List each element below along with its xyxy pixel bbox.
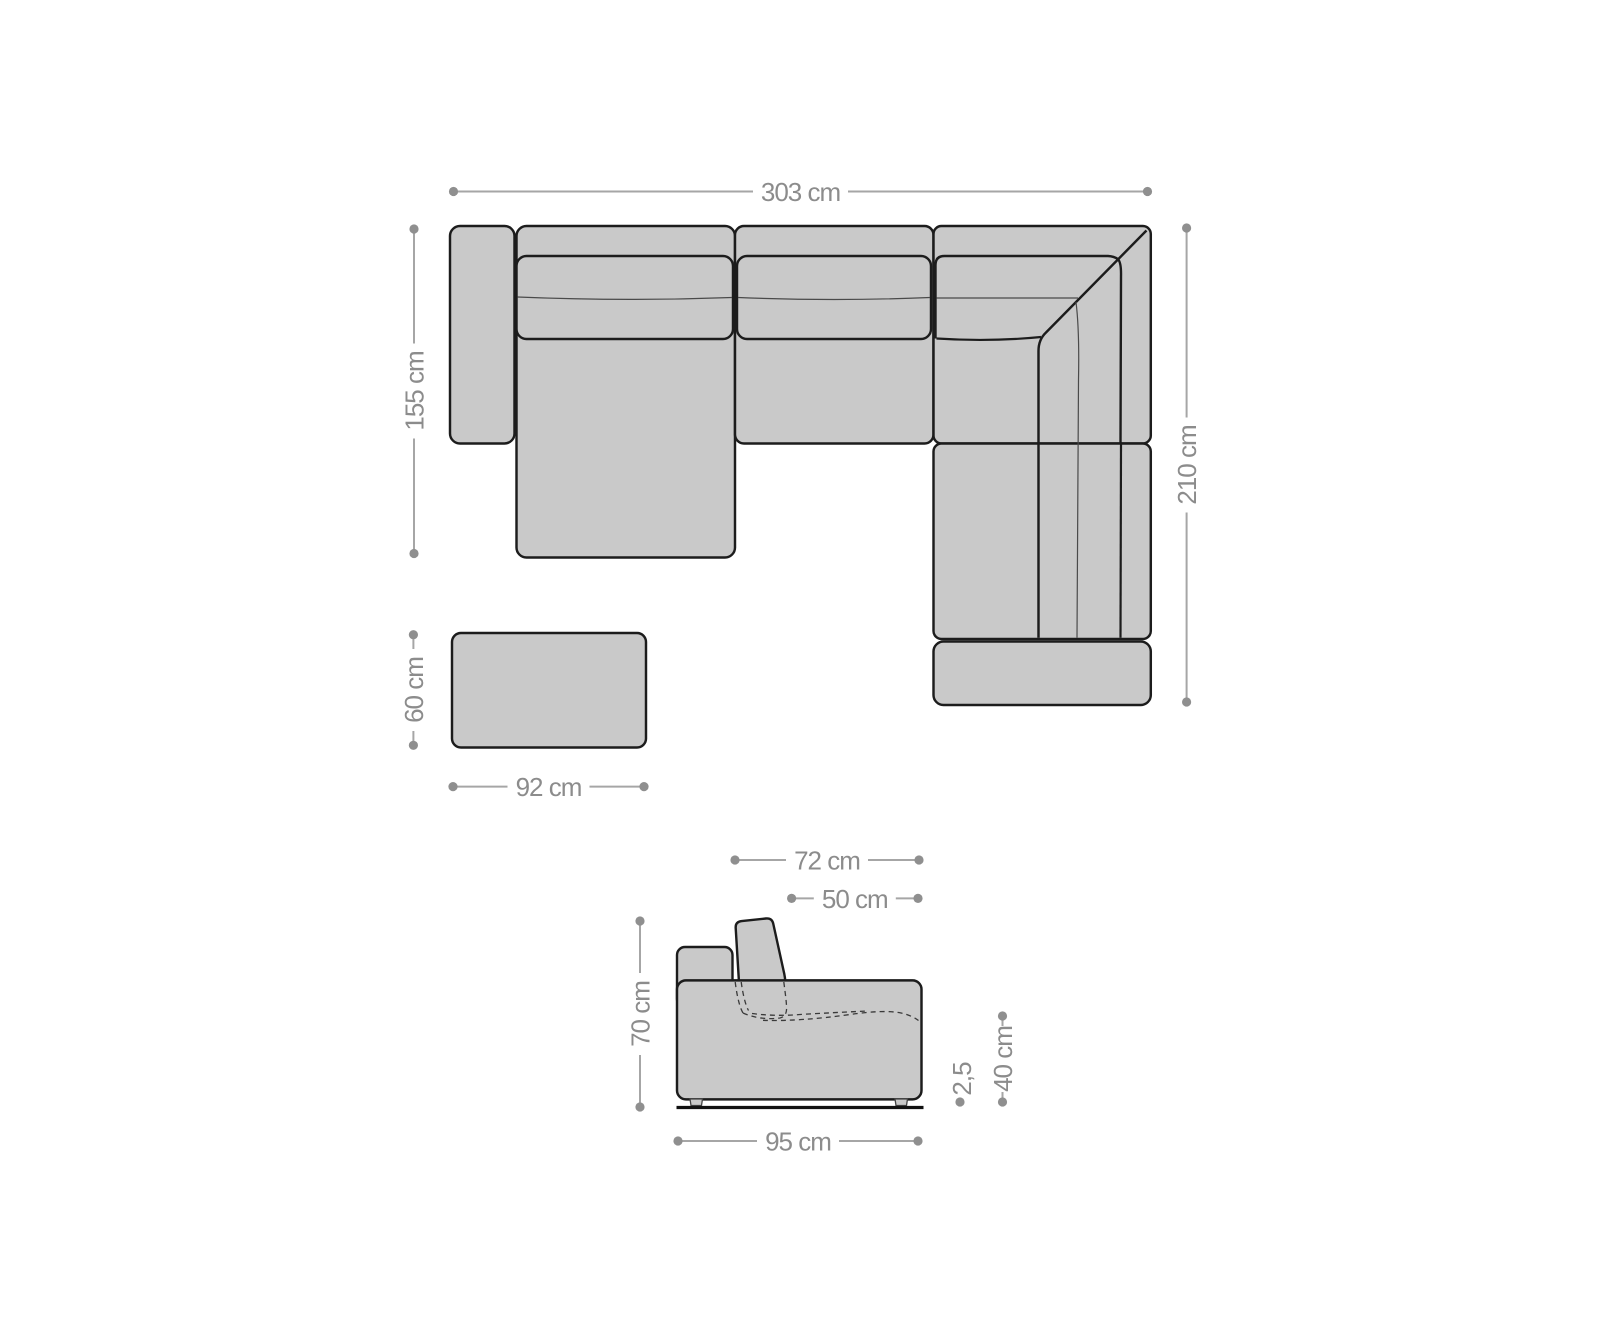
svg-text:50 cm: 50 cm [822,884,888,914]
svg-text:70 cm: 70 cm [626,981,656,1047]
svg-text:210 cm: 210 cm [1172,425,1202,504]
svg-text:155 cm: 155 cm [400,351,430,430]
svg-text:92 cm: 92 cm [516,772,582,802]
svg-text:40 cm: 40 cm [988,1026,1018,1092]
svg-text:303 cm: 303 cm [761,177,840,207]
svg-text:72 cm: 72 cm [794,846,860,876]
svg-text:60 cm: 60 cm [399,657,429,723]
svg-text:95 cm: 95 cm [765,1127,831,1157]
svg-text:2,5: 2,5 [947,1062,977,1096]
